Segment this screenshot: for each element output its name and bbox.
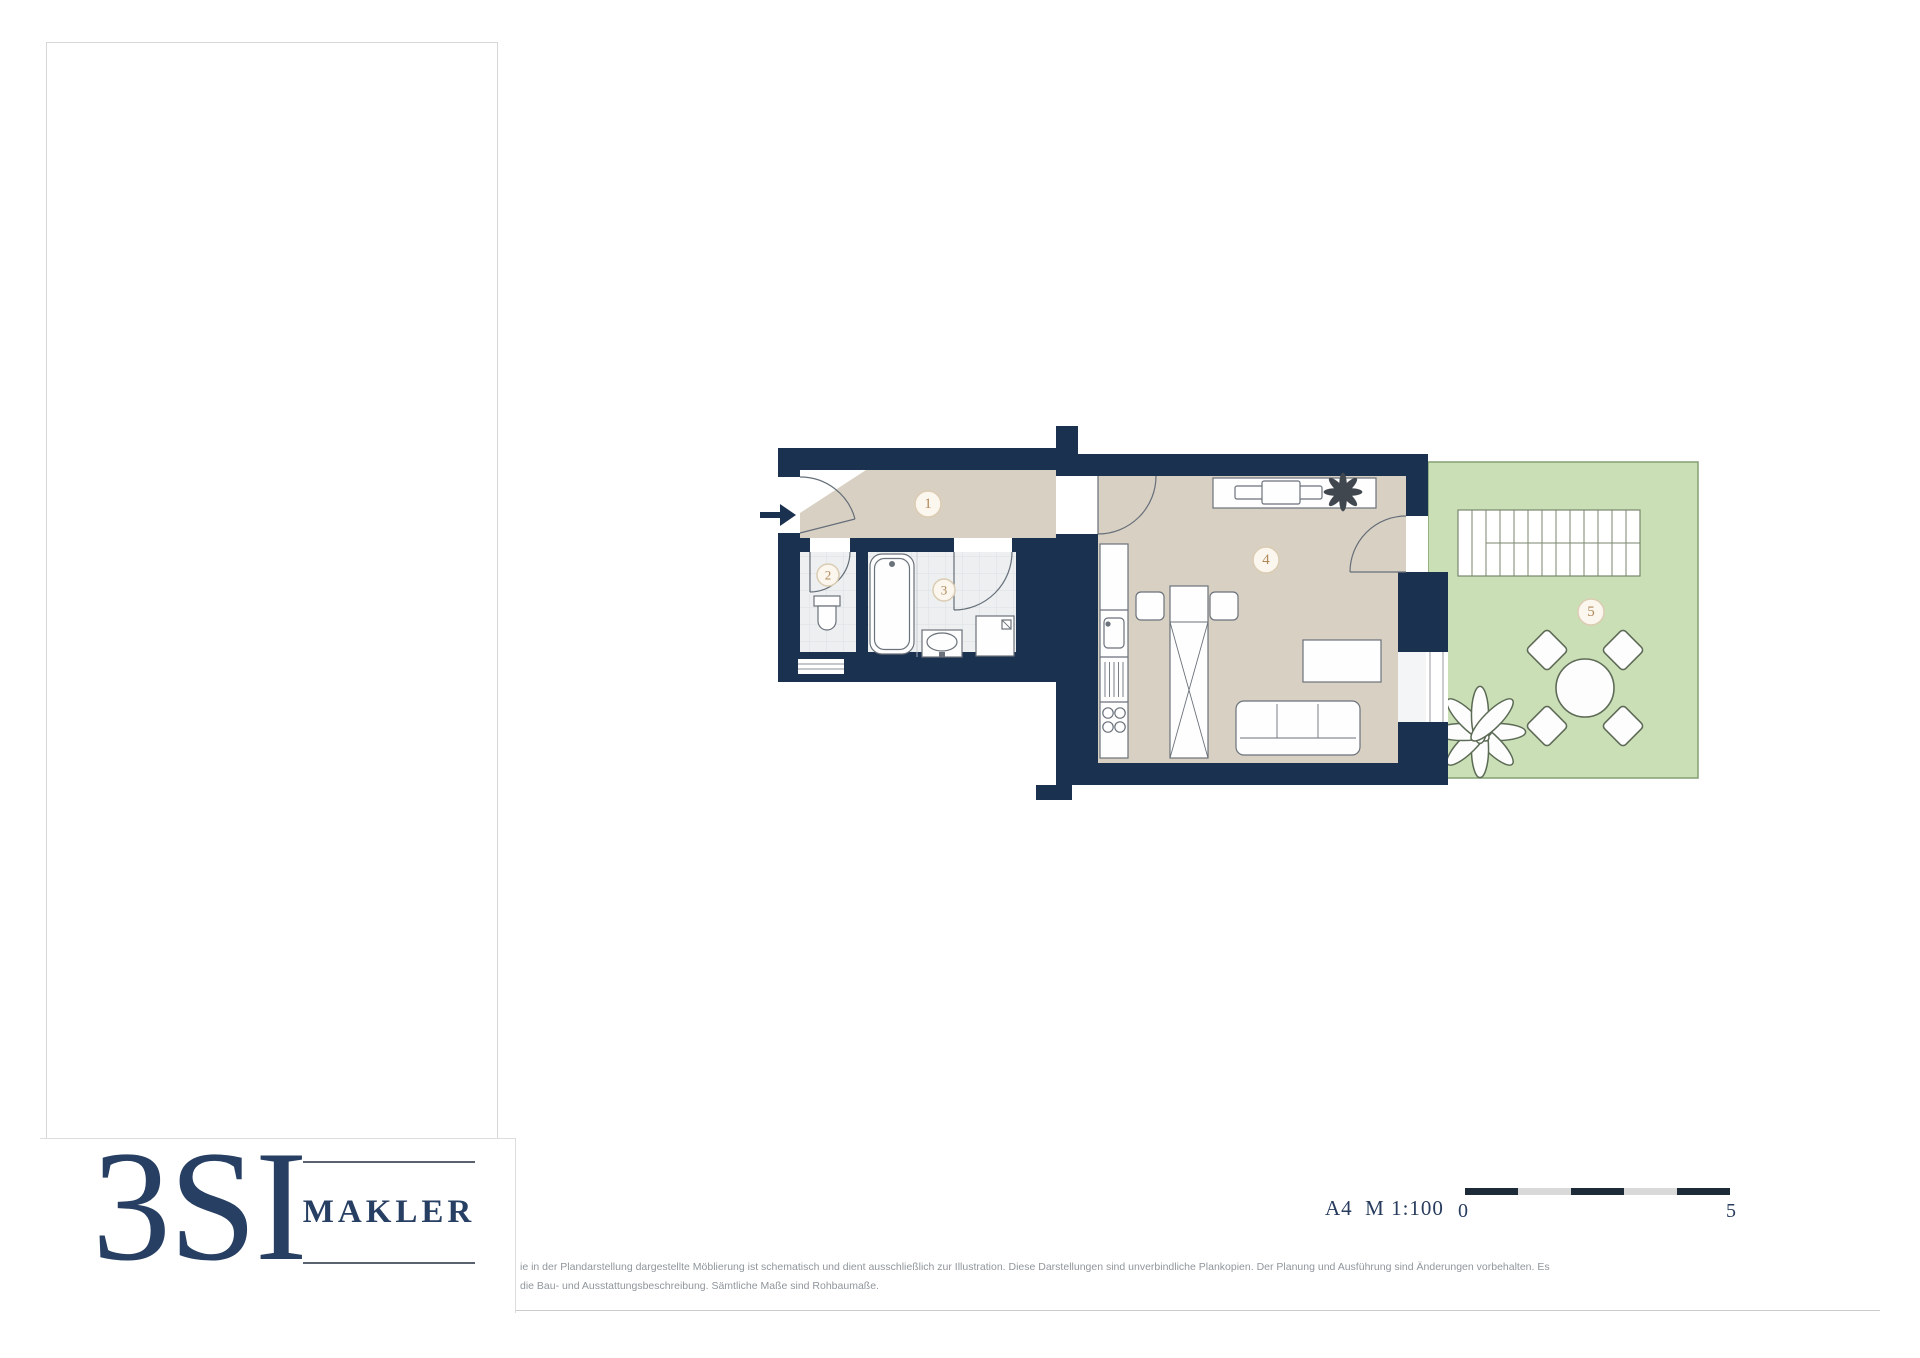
room-label-5: 5 (1587, 604, 1595, 620)
sink (922, 630, 962, 657)
garden-mietergarten (1428, 462, 1698, 778)
kitchen-counter (1100, 544, 1128, 758)
room-label-4: 4 (1262, 552, 1270, 568)
room-label-3: 3 (941, 583, 948, 598)
footer-brand-logo-text: 3SI (92, 1128, 306, 1286)
washing-machine (976, 616, 1014, 656)
floorplan-page: 3SI IMMO GROUP Hainburger Straße 47 1030… (0, 0, 1920, 1358)
scale-bar-segment (1518, 1188, 1571, 1195)
disclaimer-line-1: ie in der Plandarstellung dargestellte M… (520, 1258, 1630, 1277)
scale-bar-segment (1677, 1188, 1730, 1195)
room-label-1: 1 (924, 496, 932, 512)
scale-bar (1465, 1188, 1730, 1195)
window-niche (1398, 652, 1426, 722)
scale-bar-segment (1624, 1188, 1677, 1195)
scale-bar-segment (1465, 1188, 1518, 1195)
sofa (1236, 701, 1360, 755)
footer-brand-division: MAKLER (303, 1161, 475, 1264)
floorplan-drawing: 1 2 3 4 5 (758, 420, 1708, 800)
disclaimer-text: ie in der Plandarstellung dargestellte M… (520, 1258, 1630, 1296)
scale-bar-segment (1571, 1188, 1624, 1195)
disclaimer-line-2: die Bau- und Ausstattungsbeschreibung. S… (520, 1277, 1630, 1296)
coffee-table (1303, 640, 1381, 682)
footer-rule (513, 1310, 1880, 1311)
garden-stairs (1458, 510, 1640, 576)
scale-end-label: 5 (1726, 1200, 1736, 1223)
room-label-2: 2 (825, 568, 832, 583)
wardrobe (1170, 586, 1208, 758)
indoor-plant-icon (1324, 473, 1362, 511)
scale-start-label: 0 (1458, 1200, 1468, 1223)
sidebar-card (46, 42, 498, 1152)
garden-plant-icon (1434, 686, 1525, 777)
format-scale-label: A4 M 1:100 (1325, 1196, 1444, 1221)
bathtub (870, 554, 914, 654)
